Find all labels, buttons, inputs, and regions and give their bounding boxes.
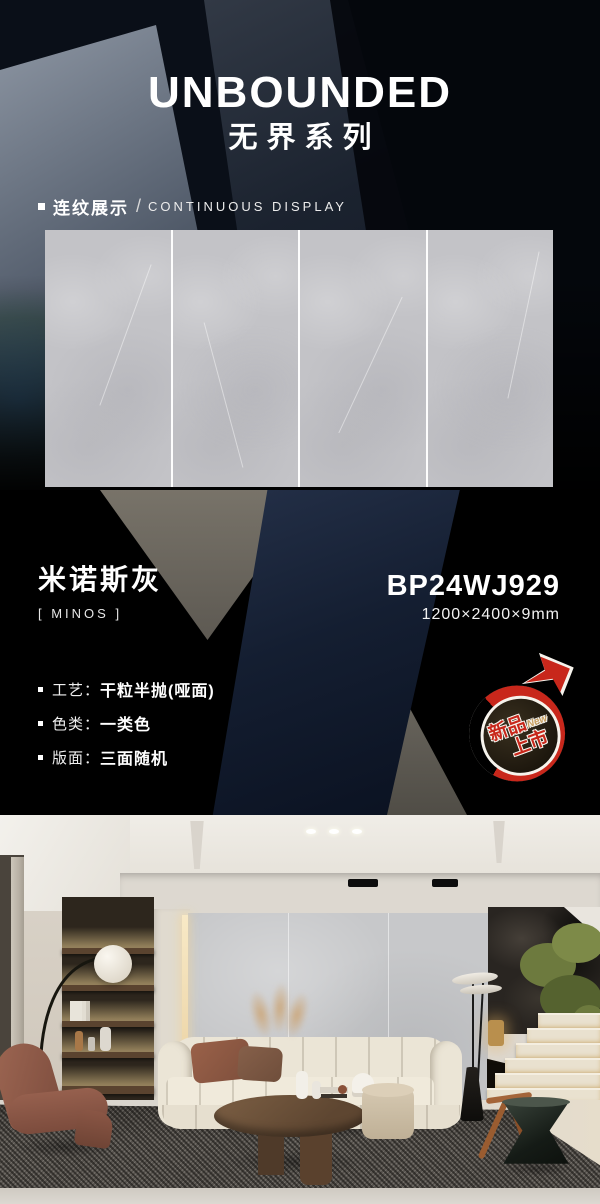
square-bullet-icon bbox=[38, 755, 43, 760]
track-light-slot bbox=[348, 879, 378, 887]
series-title-en: UNBOUNDED bbox=[0, 68, 600, 118]
spec-row-craft: 工艺： 干粒半抛(哑面) bbox=[38, 678, 215, 700]
ball-decor bbox=[338, 1085, 347, 1094]
tile-swatch bbox=[45, 230, 171, 487]
tree-foliage bbox=[552, 923, 600, 963]
label-cn: 连纹展示 bbox=[53, 194, 129, 219]
label-en: CONTINUOUS DISPLAY bbox=[148, 199, 347, 214]
room-scene-photo bbox=[0, 815, 600, 1204]
product-name-cn: 米诺斯灰 bbox=[38, 558, 162, 598]
tile-vein bbox=[507, 252, 539, 399]
recessed-light bbox=[329, 829, 339, 834]
continuous-display-label: 连纹展示 / CONTINUOUS DISPLAY bbox=[38, 194, 347, 219]
product-poster: UNBOUNDED 无界系列 连纹展示 / CONTINUOUS DISPLAY… bbox=[0, 0, 600, 1204]
lantern-decor bbox=[488, 1020, 504, 1046]
spec-value: 干粒半抛(哑面) bbox=[100, 677, 215, 701]
tile-vein bbox=[99, 264, 151, 405]
spec-row-color-class: 色类： 一类色 bbox=[38, 712, 215, 734]
track-light-slot bbox=[432, 879, 458, 887]
product-name-en: [ MINOS ] bbox=[38, 606, 162, 621]
model-dimensions: 1200×2400×9mm bbox=[387, 606, 560, 624]
tile-continuous-panel bbox=[45, 230, 553, 487]
tile-swatch bbox=[300, 230, 426, 487]
square-bullet-icon bbox=[38, 687, 43, 692]
product-model-block: BP24WJ929 1200×2400×9mm bbox=[387, 570, 560, 624]
square-bullet-icon bbox=[38, 203, 45, 210]
product-name-block: 米诺斯灰 [ MINOS ] bbox=[38, 558, 162, 621]
spec-list: 工艺： 干粒半抛(哑面) 色类： 一类色 版面： 三面随机 bbox=[38, 678, 215, 780]
new-arrival-badge: 新品New 上市 bbox=[448, 648, 597, 797]
product-info-section: 米诺斯灰 [ MINOS ] BP24WJ929 1200×2400×9mm 工… bbox=[0, 490, 600, 815]
white-vase bbox=[296, 1071, 308, 1099]
badge-text: 新品New 上市 bbox=[479, 704, 562, 767]
spec-label: 色类： bbox=[52, 713, 100, 734]
label-separator: / bbox=[136, 196, 141, 217]
brown-pillow bbox=[237, 1046, 283, 1083]
spec-label: 工艺： bbox=[52, 679, 100, 700]
model-code: BP24WJ929 bbox=[387, 570, 560, 603]
tile-vein bbox=[203, 322, 243, 467]
floor-front-strip bbox=[0, 1188, 600, 1204]
series-title-cn: 无界系列 bbox=[0, 114, 600, 156]
orb-lampshade bbox=[94, 945, 132, 983]
square-bullet-icon bbox=[38, 721, 43, 726]
side-stool-top bbox=[362, 1083, 414, 1097]
tile-vein bbox=[338, 297, 402, 433]
tile-swatch bbox=[428, 230, 554, 487]
recessed-light bbox=[352, 829, 362, 834]
table-leg bbox=[300, 1133, 332, 1185]
tile-swatch bbox=[173, 230, 299, 487]
spec-label: 版面： bbox=[52, 747, 100, 768]
coffee-table-top bbox=[214, 1095, 366, 1137]
glass-table-top bbox=[502, 1097, 570, 1107]
spec-value: 一类色 bbox=[100, 711, 151, 735]
spec-row-layout: 版面： 三面随机 bbox=[38, 746, 215, 768]
recessed-light bbox=[306, 829, 316, 834]
spec-value: 三面随机 bbox=[100, 745, 168, 769]
table-shadow bbox=[208, 1145, 383, 1179]
